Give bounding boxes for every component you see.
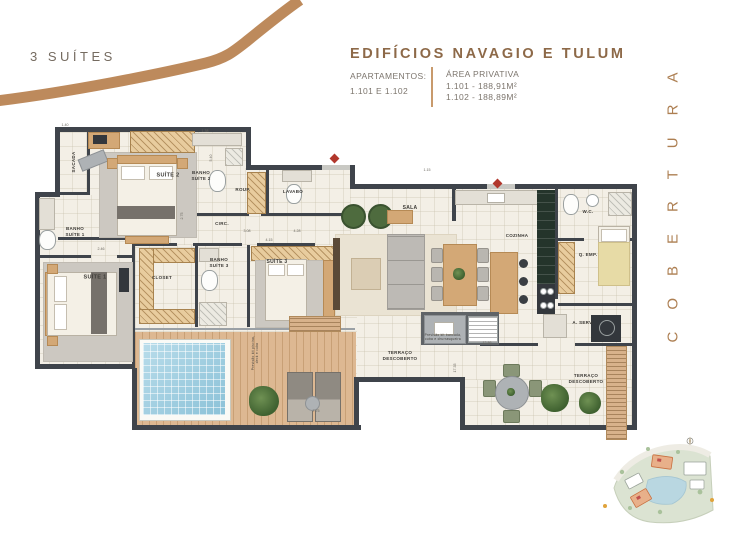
dimension-label: 1.40 <box>62 123 69 127</box>
apartments-label: APARTAMENTOS: <box>350 69 430 84</box>
info-divider <box>431 67 433 107</box>
dimension-label: 12.86 <box>483 341 492 345</box>
room-label: CIRC. <box>215 221 229 227</box>
room-label: Previsão kit piscina, deck e cuba <box>251 336 259 370</box>
dimension-label: 7.75 <box>313 409 320 413</box>
area-label: ÁREA PRIVATIVA <box>446 69 566 81</box>
map-marker <box>710 498 714 502</box>
room-label: Q. EMP. <box>579 252 598 258</box>
room-label: W.C. <box>583 209 594 215</box>
room-label: SUÍTE 3 <box>267 259 288 266</box>
dimension-label: 2.75 <box>180 213 184 220</box>
room-label: TERRAÇO DESCOBERTO <box>569 373 604 385</box>
side-label-cobertura: COBERTURA <box>665 42 682 352</box>
room-label: LAVABO <box>283 189 303 195</box>
room-label: ROUP. <box>235 187 250 193</box>
room-label: BANHO SUÍTE 2 <box>191 170 210 182</box>
apartments-value: 1.101 E 1.102 <box>350 84 430 99</box>
room-label: A. SERV. <box>572 320 593 326</box>
dimension-label: 1.15 <box>424 168 431 172</box>
room-label: Previsão kit bancada, cuba e churrasquei… <box>425 333 462 341</box>
floor-plan: SACADASUÍTE 2BANHO SUÍTE 2ROUP.LAVABOCIR… <box>35 118 641 434</box>
dimension-label: 3.08 <box>244 229 251 233</box>
plan-type-heading: 3 SUÍTES <box>30 49 116 64</box>
room-label: BANHO SUÍTE 1 <box>65 226 84 238</box>
dimension-label: 17.35 <box>453 364 457 373</box>
page: 3 SUÍTES EDIFÍCIOS NAVAGIO E TULUM APART… <box>0 0 729 560</box>
floor-plan-labels: SACADASUÍTE 2BANHO SUÍTE 2ROUP.LAVABOCIR… <box>35 118 641 434</box>
dimension-label: 2.46 <box>98 247 105 251</box>
room-label: SACADA <box>71 151 77 172</box>
area-line2: 1.102 - 188,89M² <box>446 92 566 104</box>
map-marker <box>603 504 607 508</box>
dimension-label: 1.38 <box>202 129 209 133</box>
dimension-label: 5.40 <box>209 155 213 162</box>
page-title: EDIFÍCIOS NAVAGIO E TULUM <box>350 46 626 62</box>
room-label: SUÍTE 2 <box>157 172 180 179</box>
room-label: SUÍTE 1 <box>84 274 107 281</box>
room-label: SALA <box>403 205 418 212</box>
dimension-label: 4.28 <box>294 229 301 233</box>
room-label: CLOSET <box>152 275 172 281</box>
room-label: BANHO SUÍTE 3 <box>209 257 228 269</box>
room-label: COZINHA <box>506 233 529 239</box>
area-line1: 1.101 - 188,91M² <box>446 81 566 93</box>
room-label: TERRAÇO DESCOBERTO <box>383 350 418 362</box>
compass-icon <box>687 437 693 446</box>
dimension-label: 4.15 <box>266 238 273 242</box>
site-map <box>600 428 725 553</box>
